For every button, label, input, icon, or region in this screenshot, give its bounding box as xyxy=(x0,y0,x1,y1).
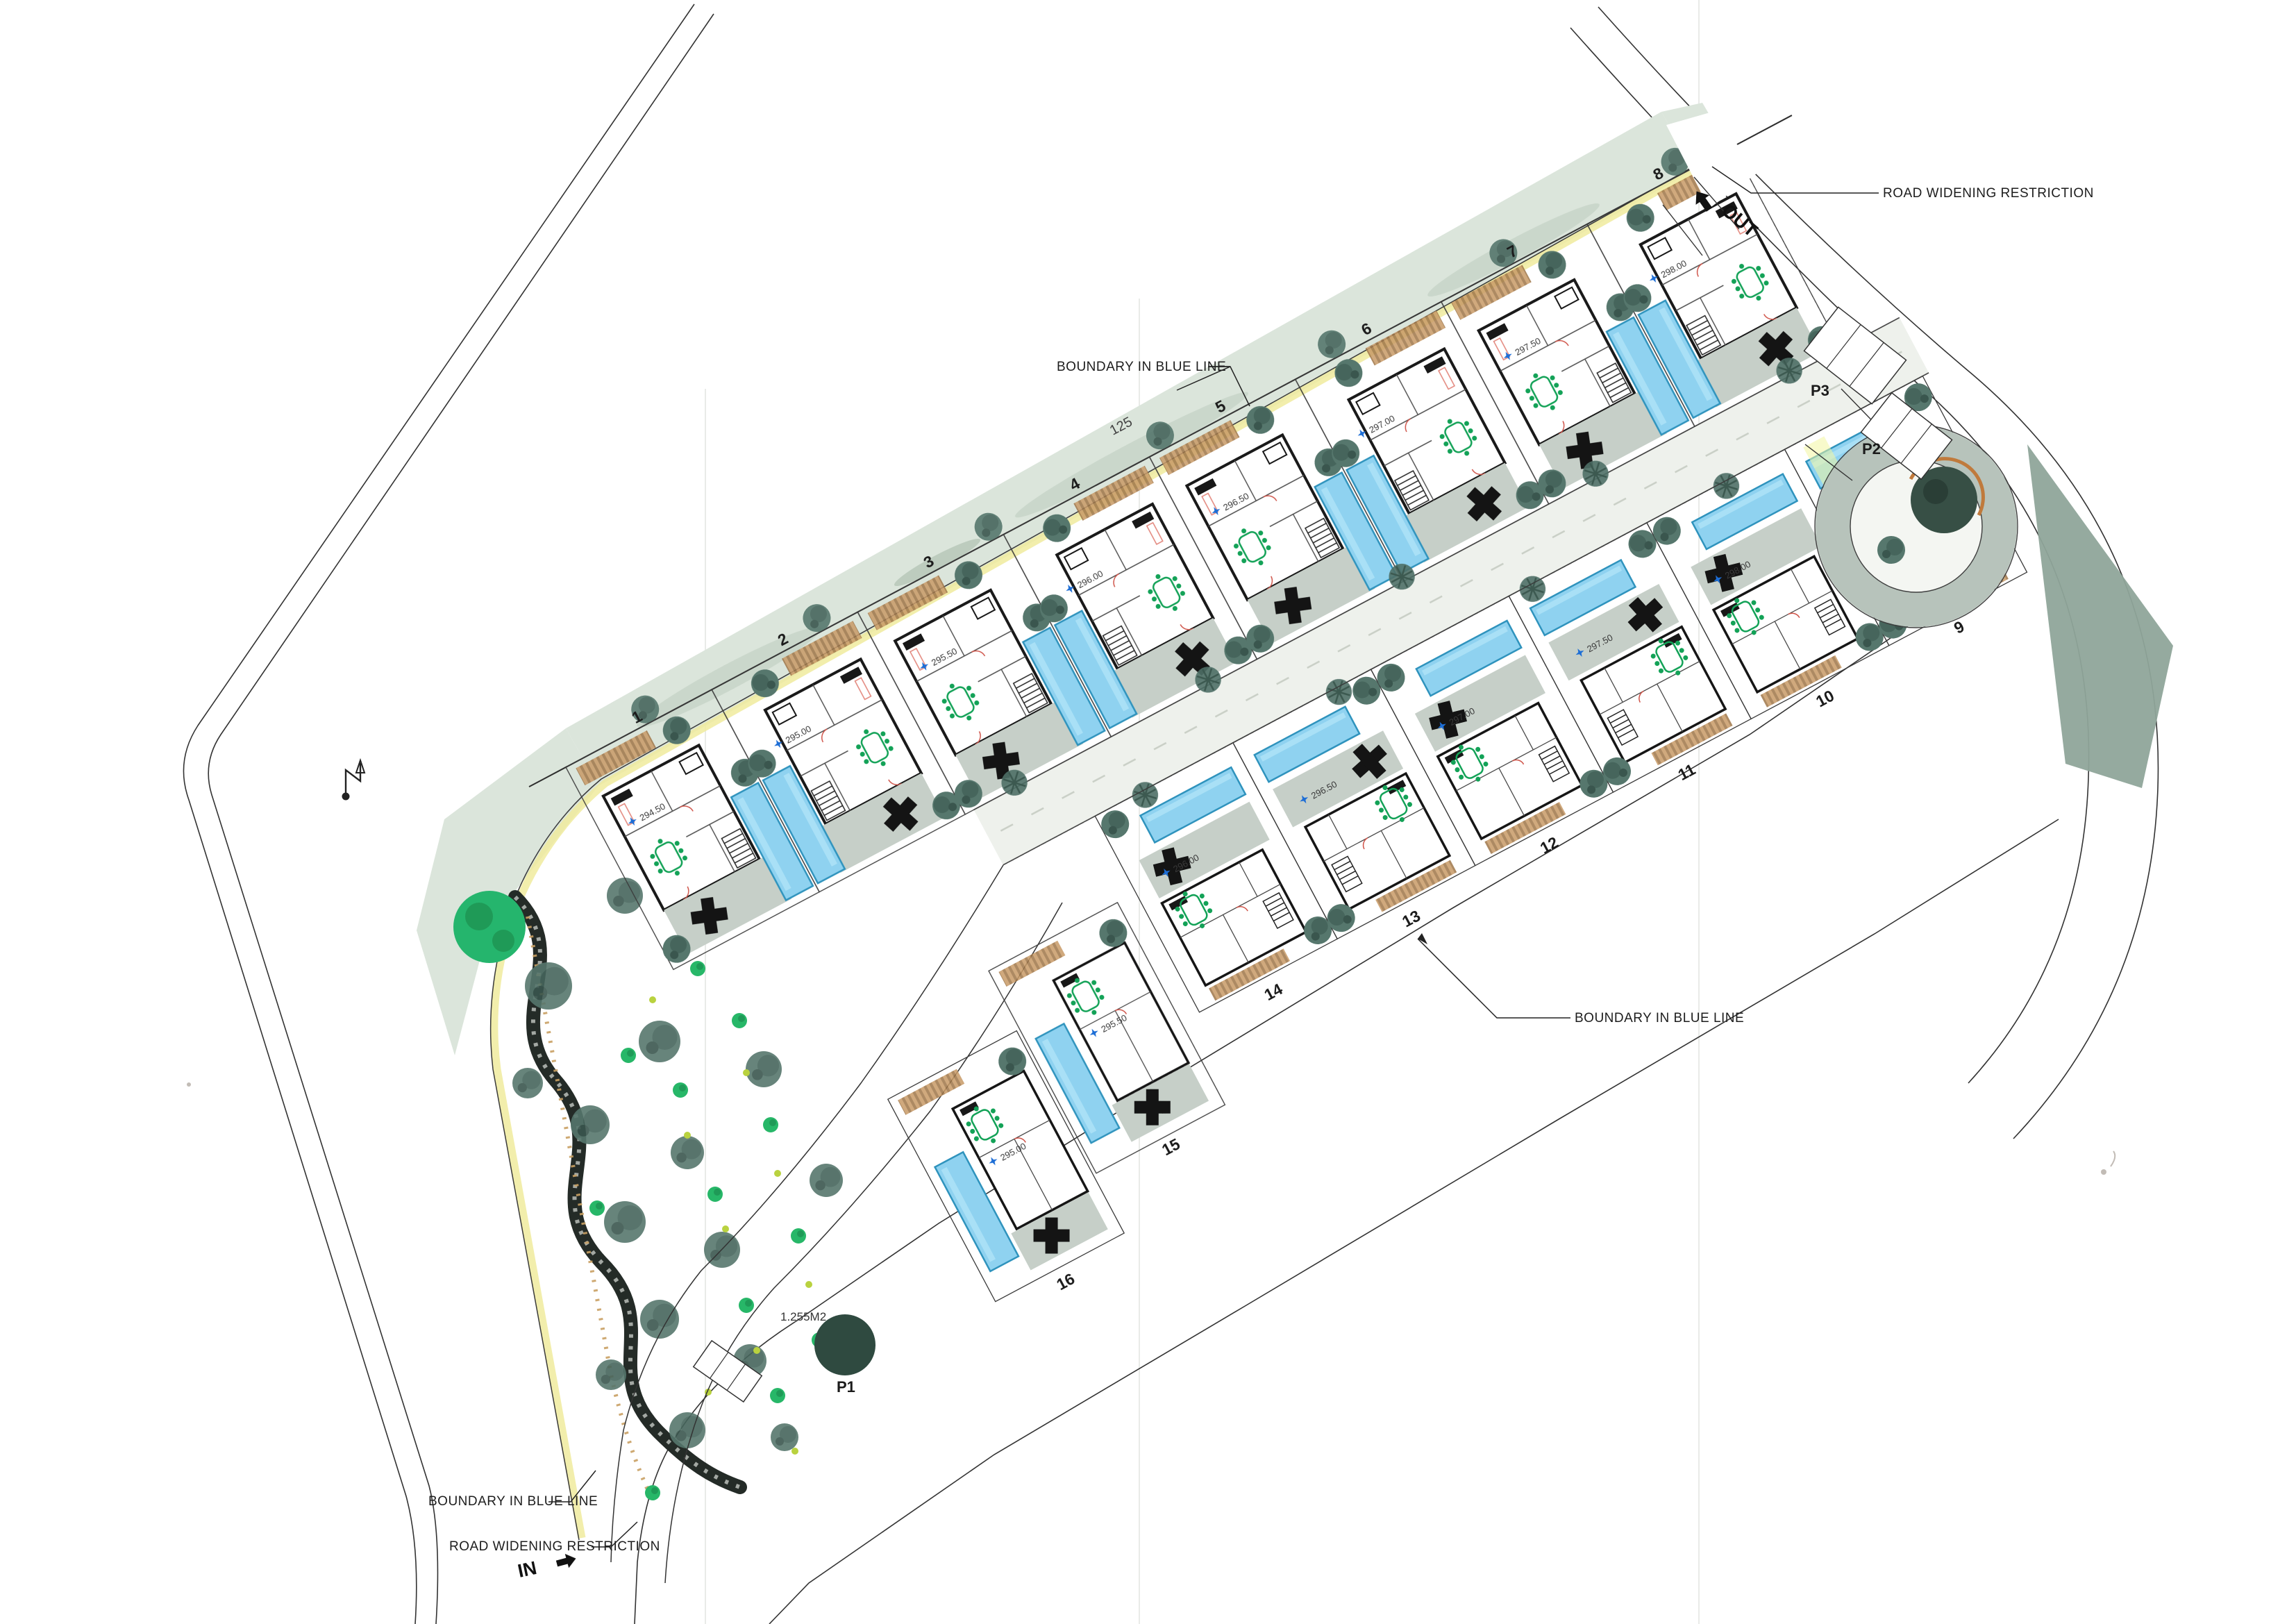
boundary-bottom-label: BOUNDARY IN BLUE LINE xyxy=(428,1494,598,1509)
p1-dark-tree xyxy=(814,1314,875,1375)
boundary-top-label: BOUNDARY IN BLUE LINE xyxy=(1057,360,1226,374)
garden-area-label: 1.255M2 xyxy=(780,1310,826,1323)
boundary-right-label: BOUNDARY IN BLUE LINE xyxy=(1575,1011,1744,1026)
p1-label: P1 xyxy=(837,1378,855,1396)
p3-label: P3 xyxy=(1811,382,1829,399)
p2-label: P2 xyxy=(1862,440,1881,458)
road-widening-top-label: ROAD WIDENING RESTRICTION xyxy=(1883,186,2094,201)
large-green-tree xyxy=(453,891,526,963)
road-widening-bottom-label: ROAD WIDENING RESTRICTION xyxy=(449,1539,660,1554)
site-plan-svg: 1.255M2 125 1 2 3 xyxy=(0,0,2296,1624)
